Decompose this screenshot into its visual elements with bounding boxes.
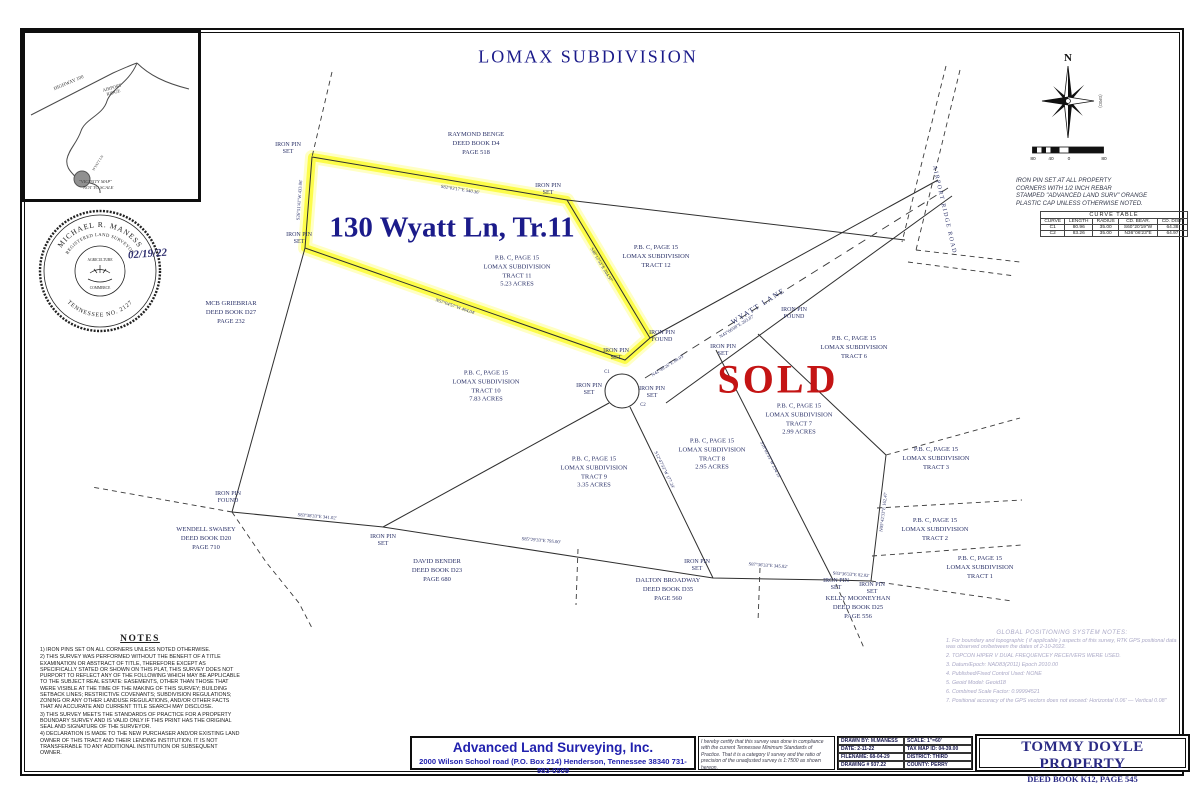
curve-table-title: CURVE TABLE (1041, 212, 1188, 219)
iron-pin-label: IRON PIN FOUND (649, 330, 675, 344)
iron-pin-label: IRON PIN SET (859, 582, 885, 596)
curve-table-header: LENGTH (1065, 219, 1093, 225)
iron-pin-label: IRON PIN SET (684, 559, 710, 573)
iron-pin-label: IRON PIN SET (535, 183, 561, 197)
scale-tick: 80 (1101, 157, 1106, 162)
note-item: 1) IRON PINS SET ON ALL CORNERS UNLESS N… (40, 647, 240, 653)
scale-tick: 80 (1030, 157, 1035, 162)
curve-table-header: CD. DIST. (1157, 219, 1187, 225)
north-label: N (1064, 52, 1072, 64)
curve-table-row: C283.2635.00N36°06'23"E64.97 (1041, 231, 1188, 237)
property-box: TOMMY DOYLE PROPERTY DEED BOOK K12, PAGE… (975, 734, 1190, 772)
drawing-info-field: DISTRICT: THIRD (904, 753, 972, 761)
certification-box: I hereby certify that this survey was do… (698, 736, 835, 770)
gps-note-item: 7. Positional accuracy of the GPS vector… (942, 698, 1182, 704)
seal-agriculture: AGRICULTURE (87, 258, 113, 262)
tract-label: P.B. C, PAGE 15 LOMAX SUBDIVISION TRACT … (623, 244, 690, 270)
seal-emblem (88, 265, 112, 282)
iron-pin-label: IRON PIN SET (639, 386, 665, 400)
highlight-tract-title: 130 Wyatt Ln, Tr.11 (329, 212, 574, 245)
drawing-info-field: COUNTY: PERRY (904, 761, 972, 769)
tract-label: P.B. C, PAGE 15 LOMAX SUBDIVISION TRACT … (947, 555, 1014, 581)
bearing-label: C2 (640, 403, 645, 408)
iron-pin-note: IRON PIN SET AT ALL PROPERTY CORNERS WIT… (1016, 178, 1186, 208)
curve-table-cell: 64.97 (1157, 231, 1187, 237)
tract-label: P.B. C, PAGE 15 LOMAX SUBDIVISION TRACT … (903, 446, 970, 472)
drawing-info-field: DATE: 2-11-22 (838, 745, 904, 753)
iron-pin-label: IRON PIN SET (576, 383, 602, 397)
gps-notes-panel: GLOBAL POSITIONING SYSTEM NOTES: 1. For … (942, 630, 1182, 707)
neighbor-label: KELLY MOONEYHAN DEED BOOK D25 PAGE 556 (826, 595, 891, 621)
seal-state: TENNESSEE NO. 2127 (66, 300, 134, 319)
scale-tick: 0 (1068, 157, 1071, 162)
curve-table: CURVE TABLE CURVELENGTHRADIUSCD. BEAR.CD… (1040, 211, 1188, 237)
iron-pin-label: IRON PIN SET (710, 344, 736, 358)
vicinity-map: HIGHWAY 100 AIRPORT RIDGE WYATT LN "VICI… (22, 30, 201, 202)
drawing-info-field: FILENAME: 68-04-29 (838, 753, 904, 761)
tract-label: P.B. C, PAGE 15 LOMAX SUBDIVISION TRACT … (766, 402, 833, 437)
page-title: LOMAX SUBDIVISION (478, 47, 698, 68)
gps-note-item: 3. Datum/Epoch: NAD83(2011) Epoch 2010.0… (942, 662, 1182, 668)
survey-plat-sheet: HIGHWAY 100 AIRPORT RIDGE WYATT LN "VICI… (0, 0, 1200, 800)
neighbor-label: RAYMOND BENGE DEED BOOK D4 PAGE 518 (448, 131, 504, 157)
drawing-info-field: TAX MAP ID: 04-39.00 (904, 745, 972, 753)
property-deed: DEED BOOK K12, PAGE 545 (977, 774, 1188, 784)
tract-label: P.B. C, PAGE 15 LOMAX SUBDIVISION TRACT … (484, 254, 551, 289)
neighbor-label: DAVID BENDER DEED BOOK D23 PAGE 680 (412, 558, 462, 584)
neighbor-label: DALTON BROADWAY DEED BOOK D35 PAGE 560 (636, 577, 701, 603)
gps-note-item: 6. Combined Scale Factor: 0.99994521 (942, 689, 1182, 695)
seal-commerce: COMMERCE (90, 286, 111, 290)
curve-table-cell: 35.00 (1093, 231, 1119, 237)
neighbor-label: WENDELL SWABEY DEED BOOK D20 PAGE 710 (176, 526, 236, 552)
company-address: 2000 Wilson School road (P.O. Box 214) H… (412, 757, 694, 775)
company-box: Advanced Land Surveying, Inc. 2000 Wilso… (410, 736, 696, 770)
iron-pin-label: IRON PIN FOUND (215, 491, 241, 505)
tract-label: P.B. C, PAGE 15 LOMAX SUBDIVISION TRACT … (679, 437, 746, 472)
vicinity-caption-2: NOT TO SCALE (83, 185, 113, 190)
iron-pin-label: IRON PIN SET (275, 142, 301, 156)
note-item: 2) THIS SURVEY WAS PERFORMED WITHOUT THE… (40, 654, 240, 710)
notes-title: NOTES (40, 634, 240, 644)
iron-pin-label: IRON PIN SET (286, 232, 312, 246)
tract-label: P.B. C, PAGE 15 LOMAX SUBDIVISION TRACT … (902, 517, 969, 543)
drawing-info-field: DRAWN BY: M.MANESS (838, 737, 904, 745)
gps-note-item: 5. Geoid Model: Geoid18 (942, 680, 1182, 686)
drawing-info-field: DRAWING # 937.22 (838, 761, 904, 769)
curve-table-cell: C2 (1041, 231, 1065, 237)
north-arrow-icon (1040, 64, 1096, 140)
vicinity-caption: "VICINITY MAP" (79, 179, 112, 184)
curve-table-cell: 83.26 (1065, 231, 1093, 237)
tract-label: P.B. C, PAGE 15 LOMAX SUBDIVISION TRACT … (561, 455, 628, 490)
gps-note-item: 2. TOPCON HIPER V DUAL FREQUENCEY RECEIV… (942, 653, 1182, 659)
grid-label: (GRID) (1097, 94, 1101, 107)
vicinity-roads (25, 33, 192, 193)
gps-notes-title: GLOBAL POSITIONING SYSTEM NOTES: (942, 630, 1182, 636)
scale-tick: 40 (1048, 157, 1053, 162)
tract-label: P.B. C, PAGE 15 LOMAX SUBDIVISION TRACT … (453, 369, 520, 404)
gps-note-item: 4. Published/Fixed Control Used: NONE (942, 671, 1182, 677)
curve-table-cell: N36°06'23"E (1119, 231, 1158, 237)
sold-stamp: SOLD (718, 356, 839, 403)
note-item: 4) DECLARATION IS MADE TO THE NEW PURCHA… (40, 731, 240, 756)
iron-pin-label: IRON PIN SET (603, 348, 629, 362)
bearing-label: C1 (604, 370, 609, 375)
neighbor-label: MCB GRIEBRIAR DEED BOOK D27 PAGE 232 (205, 300, 256, 326)
drawing-info-field: SCALE: 1"=60' (904, 737, 972, 745)
drawing-info-box: DRAWN BY: M.MANESSSCALE: 1"=60'DATE: 2-1… (837, 736, 973, 770)
scale-bar (1032, 146, 1110, 156)
surveyor-seal: MICHAEL R. MANESS REGISTERED LAND SURVEY… (36, 207, 164, 335)
iron-pin-label: IRON PIN SET (823, 578, 849, 592)
curve-table-cell: S60°20'19"W (1119, 225, 1158, 231)
iron-pin-label: IRON PIN FOUND (781, 307, 807, 321)
property-name: TOMMY DOYLE PROPERTY (977, 739, 1188, 773)
company-name: Advanced Land Surveying, Inc. (412, 740, 694, 755)
tract-label: P.B. C, PAGE 15 LOMAX SUBDIVISION TRACT … (821, 335, 888, 361)
gps-note-item: 1. For boundary and topographic ( if app… (942, 638, 1182, 651)
iron-pin-label: IRON PIN SET (370, 534, 396, 548)
svg-text:TENNESSEE NO. 2127: TENNESSEE NO. 2127 (66, 300, 134, 319)
curve-table-header: RADIUS (1093, 219, 1119, 225)
notes-panel: NOTES 1) IRON PINS SET ON ALL CORNERS UN… (40, 634, 240, 757)
note-item: 3) THIS SURVEY MEETS THE STANDARDS OF PR… (40, 712, 240, 731)
